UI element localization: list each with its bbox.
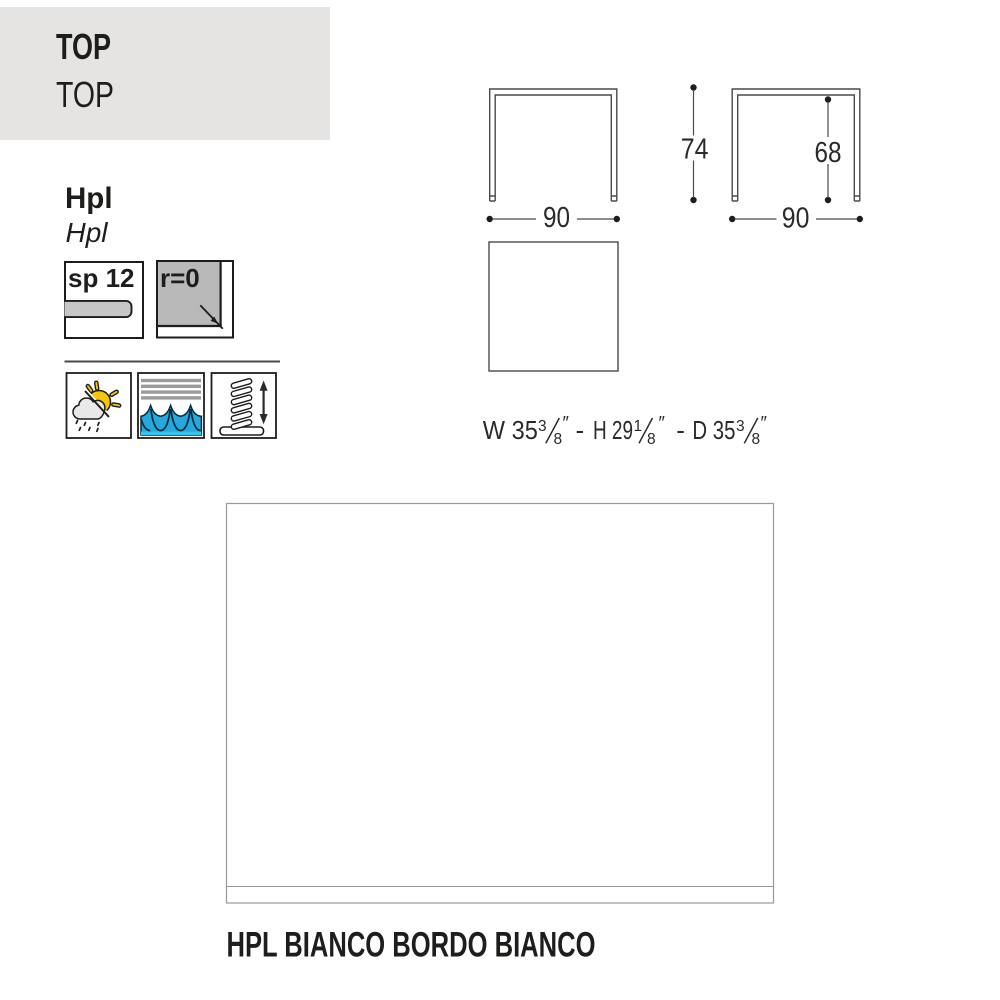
svg-text:8: 8	[554, 431, 563, 448]
svg-text:r=0: r=0	[160, 263, 200, 293]
svg-text:Hpl: Hpl	[65, 182, 113, 215]
svg-text:3: 3	[538, 418, 547, 435]
svg-text:TOP: TOP	[56, 74, 114, 115]
svg-text:74: 74	[681, 134, 709, 166]
svg-text:W 35: W 35	[483, 415, 538, 445]
svg-text:-: -	[576, 415, 585, 445]
svg-text:″: ″	[761, 413, 768, 433]
svg-text:HPL BIANCO BORDO BIANCO: HPL BIANCO BORDO BIANCO	[227, 926, 596, 965]
svg-text:sp 12: sp 12	[68, 263, 135, 293]
svg-text:H 29: H 29	[593, 415, 633, 445]
svg-text:90: 90	[543, 202, 570, 234]
svg-text:Hpl: Hpl	[66, 217, 109, 248]
svg-text:90: 90	[782, 202, 810, 234]
svg-text:8: 8	[752, 431, 761, 448]
svg-text:D 35: D 35	[692, 415, 735, 445]
svg-text:″: ″	[659, 413, 666, 433]
svg-text:-: -	[676, 415, 685, 445]
svg-text:″: ″	[563, 413, 570, 433]
svg-text:8: 8	[647, 431, 656, 448]
svg-text:1: 1	[634, 418, 643, 435]
svg-text:68: 68	[815, 137, 842, 169]
svg-text:3: 3	[736, 418, 745, 435]
svg-text:TOP: TOP	[56, 26, 111, 67]
